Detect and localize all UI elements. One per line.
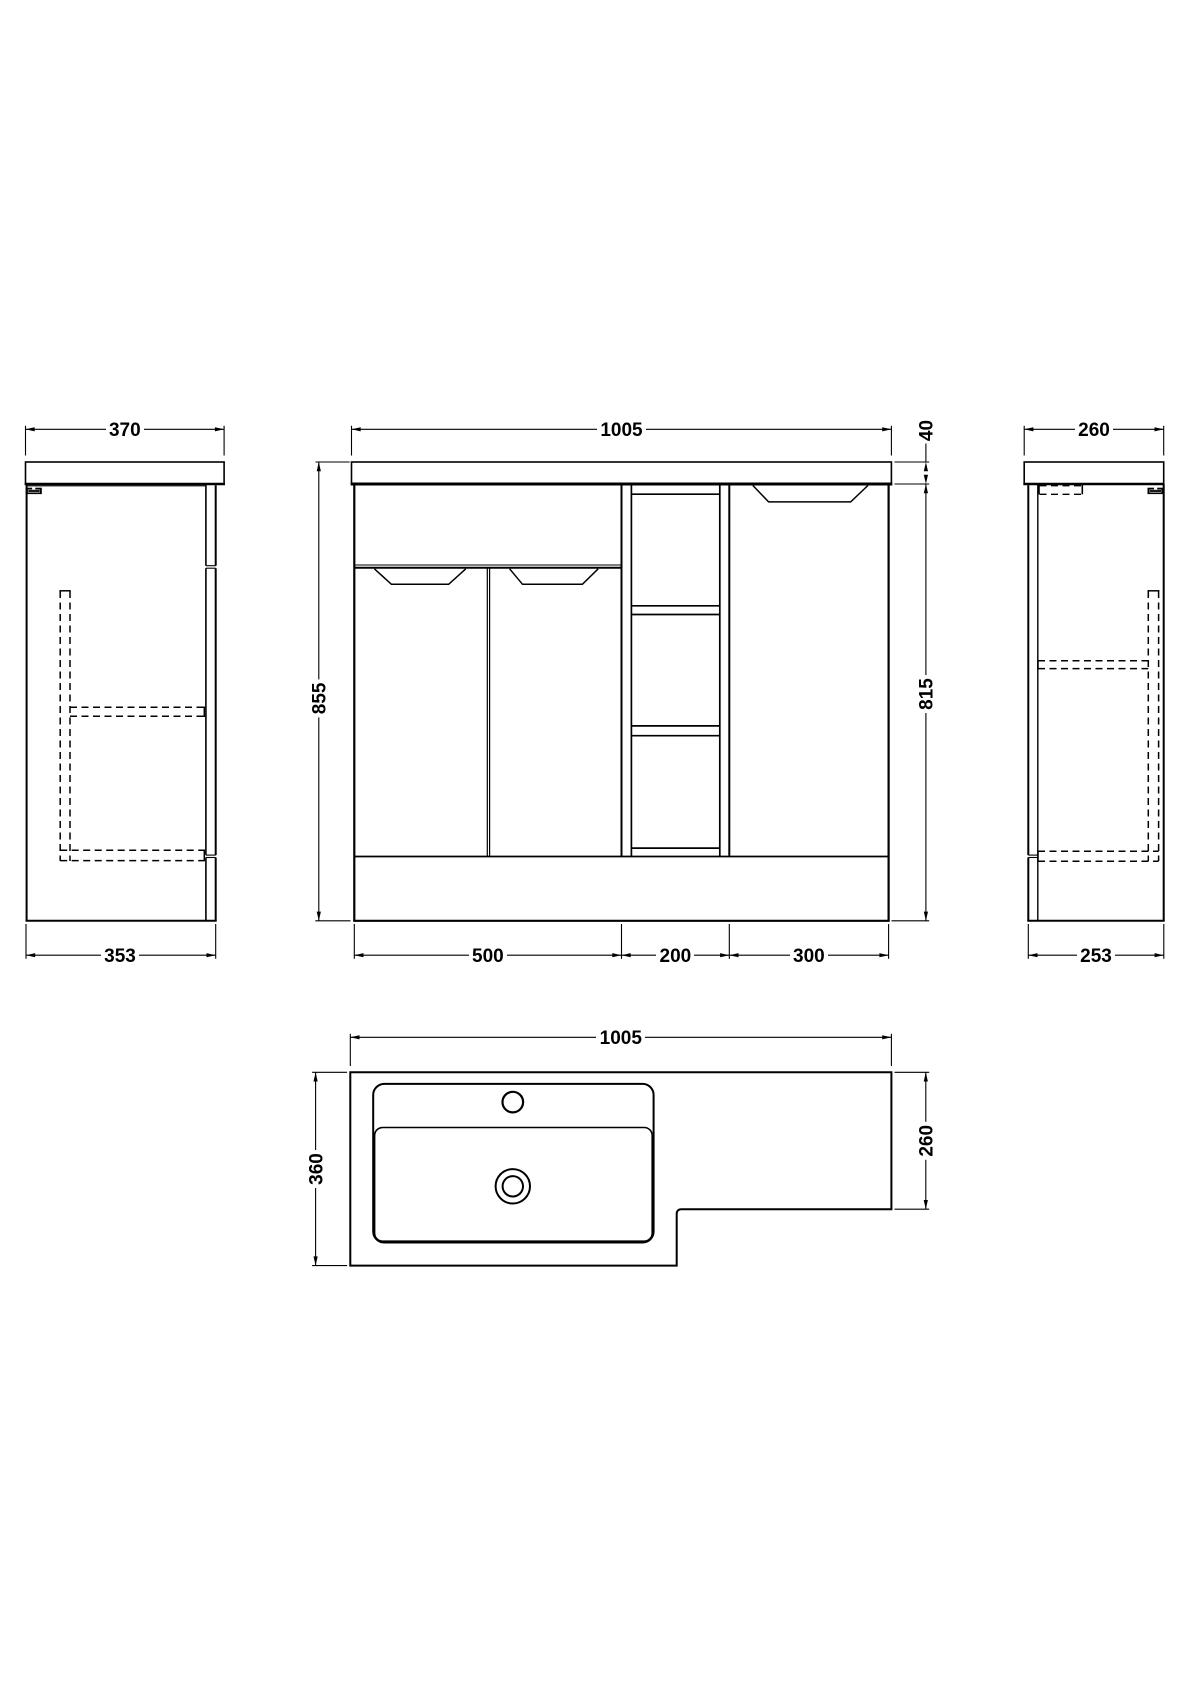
svg-text:370: 370 <box>109 420 141 441</box>
svg-text:40: 40 <box>917 420 938 441</box>
svg-text:500: 500 <box>472 946 504 967</box>
svg-text:1005: 1005 <box>600 420 643 441</box>
svg-text:360: 360 <box>306 1153 327 1185</box>
svg-text:353: 353 <box>104 946 136 967</box>
svg-text:1005: 1005 <box>600 1028 643 1049</box>
svg-text:253: 253 <box>1080 946 1112 967</box>
svg-text:200: 200 <box>660 946 692 967</box>
svg-text:815: 815 <box>917 678 938 710</box>
svg-text:300: 300 <box>793 946 825 967</box>
svg-text:260: 260 <box>1078 420 1110 441</box>
svg-text:855: 855 <box>310 682 331 714</box>
svg-text:260: 260 <box>917 1125 938 1157</box>
